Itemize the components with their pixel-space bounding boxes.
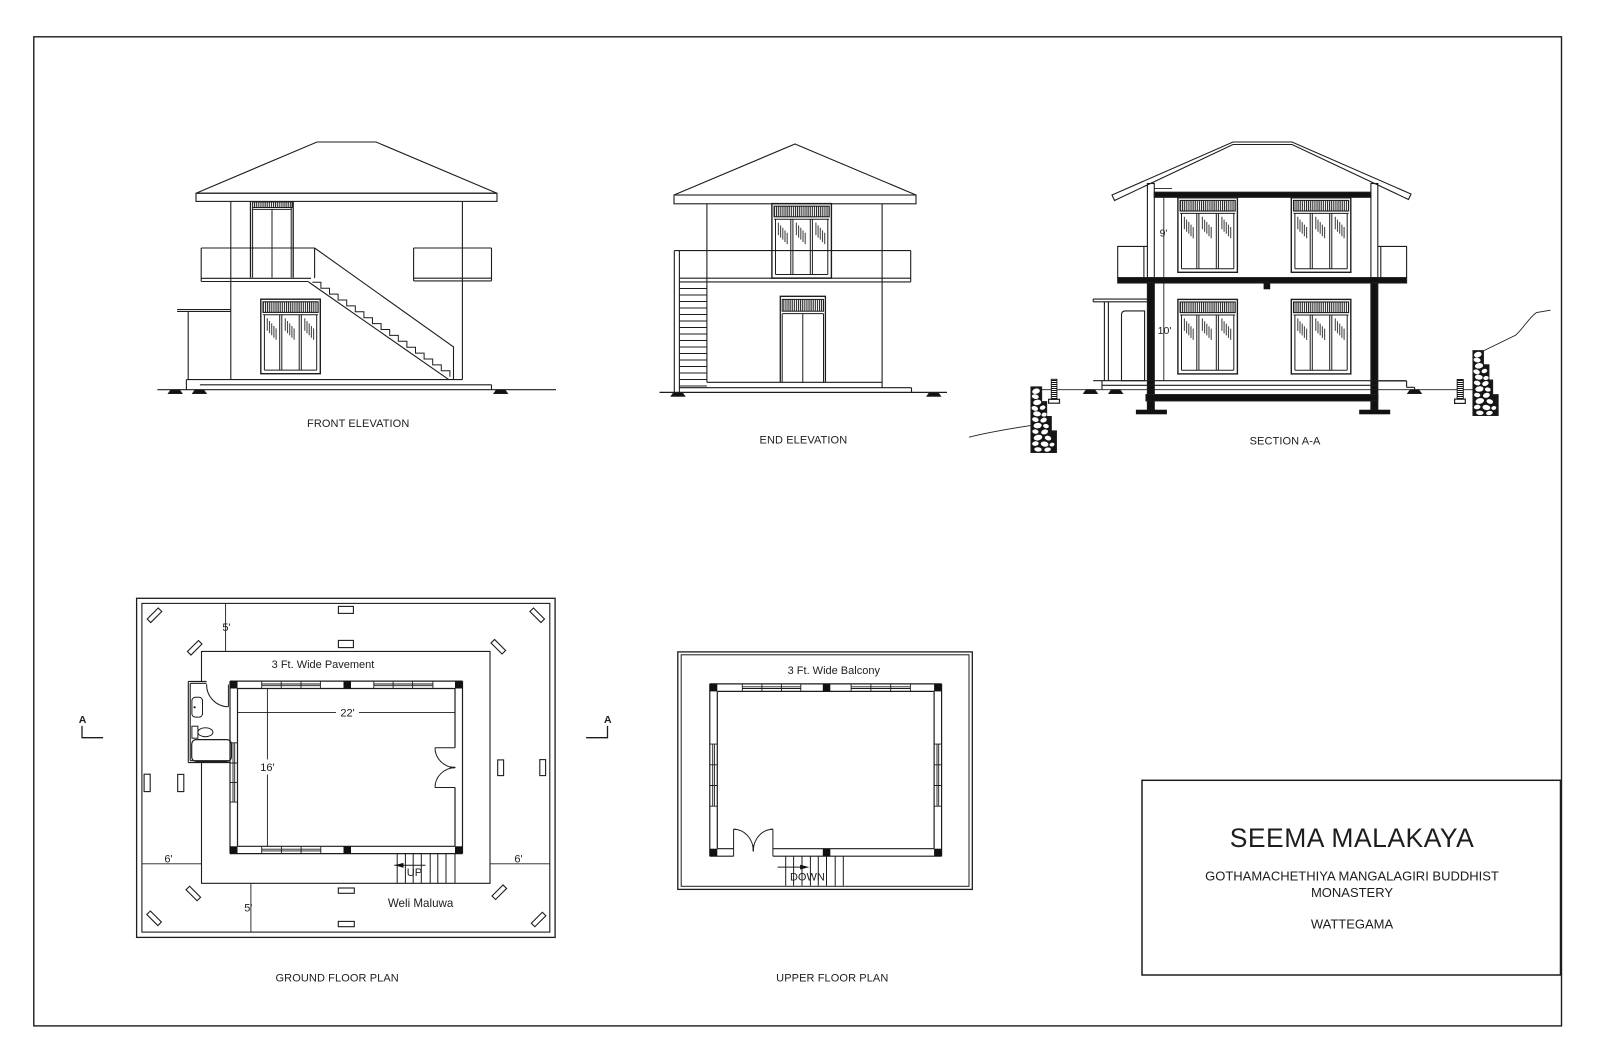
svg-text:5': 5': [244, 902, 252, 914]
svg-text:A: A: [79, 714, 87, 726]
svg-text:9': 9': [1160, 228, 1168, 240]
svg-text:GROUND FLOOR PLAN: GROUND FLOOR PLAN: [276, 972, 399, 984]
svg-text:Weli Maluwa: Weli Maluwa: [388, 897, 454, 910]
svg-text:16': 16': [260, 762, 274, 774]
svg-text:3 Ft. Wide Balcony: 3 Ft. Wide Balcony: [788, 665, 881, 677]
svg-text:5': 5': [222, 622, 230, 634]
svg-text:DOWN: DOWN: [790, 871, 825, 883]
svg-text:UPPER FLOOR PLAN: UPPER FLOOR PLAN: [776, 972, 888, 984]
svg-text:SECTION A-A: SECTION A-A: [1250, 436, 1321, 448]
svg-text:FRONT ELEVATION: FRONT ELEVATION: [307, 418, 409, 430]
svg-text:A: A: [604, 714, 612, 726]
svg-text:UP: UP: [407, 867, 422, 879]
svg-text:END ELEVATION: END ELEVATION: [760, 435, 848, 447]
svg-text:10': 10': [1158, 325, 1172, 337]
svg-text:MONASTERY: MONASTERY: [1311, 885, 1393, 900]
svg-text:SEEMA MALAKAYA: SEEMA MALAKAYA: [1230, 823, 1475, 853]
svg-text:GOTHAMACHETHIYA MANGALAGIRI BU: GOTHAMACHETHIYA MANGALAGIRI BUDDHIST: [1205, 869, 1499, 884]
svg-text:WATTEGAMA: WATTEGAMA: [1311, 917, 1394, 932]
svg-text:22': 22': [340, 707, 354, 719]
svg-text:3 Ft. Wide Pavement: 3 Ft. Wide Pavement: [272, 659, 375, 671]
svg-text:6': 6': [164, 853, 172, 865]
svg-text:6': 6': [514, 853, 522, 865]
